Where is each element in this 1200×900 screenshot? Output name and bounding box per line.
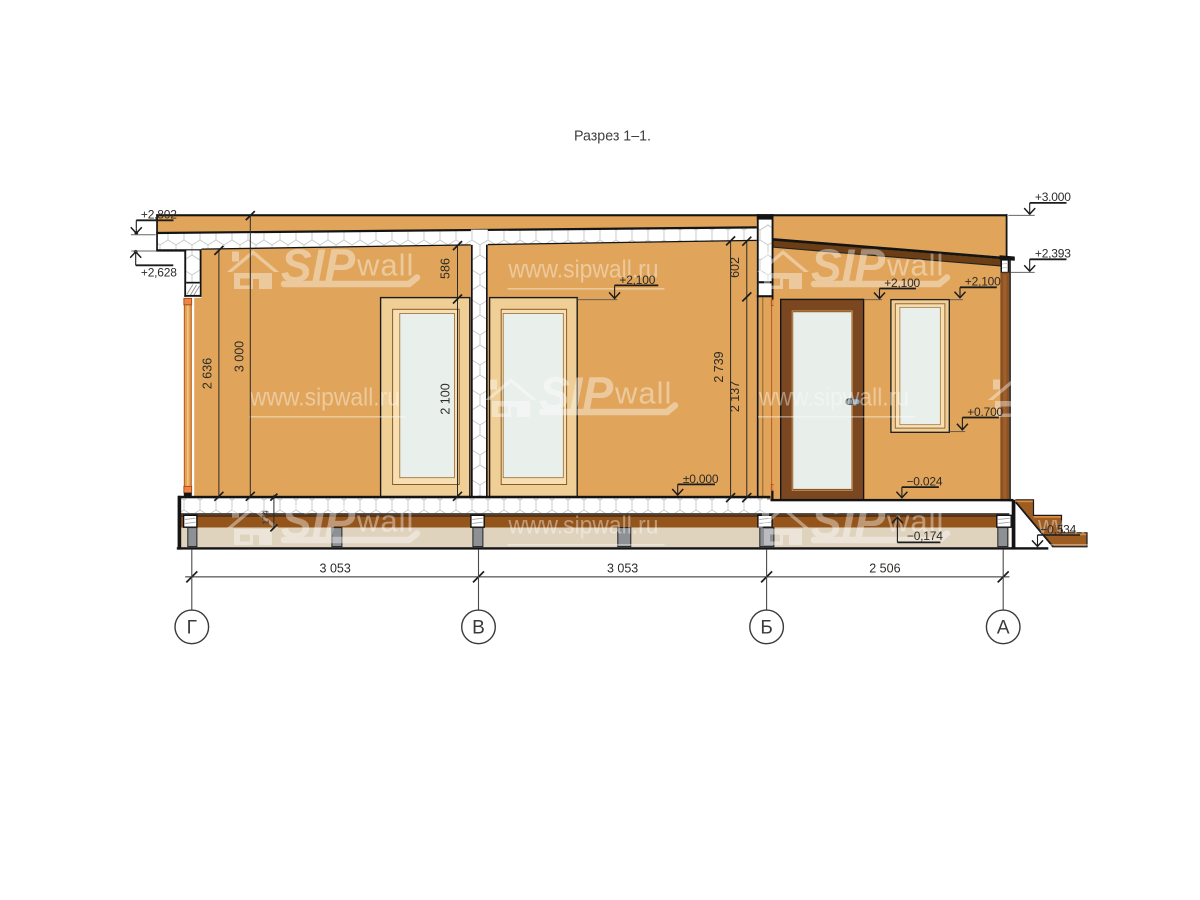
svg-text:3 000: 3 000: [233, 341, 247, 372]
svg-text:2 137: 2 137: [728, 381, 742, 412]
svg-text:174: 174: [260, 510, 270, 524]
svg-text:В: В: [472, 617, 485, 638]
svg-text:2 636: 2 636: [201, 358, 215, 389]
svg-text:2 739: 2 739: [712, 351, 726, 382]
svg-text:3 053: 3 053: [320, 562, 351, 576]
svg-text:2 100: 2 100: [439, 383, 453, 414]
svg-text:Б: Б: [760, 617, 772, 638]
svg-text:602: 602: [728, 257, 742, 278]
svg-text:А: А: [997, 617, 1010, 638]
svg-text:586: 586: [439, 258, 453, 279]
svg-text:3 053: 3 053: [607, 562, 638, 576]
svg-text:Разрез 1–1.: Разрез 1–1.: [574, 128, 651, 145]
svg-text:2 506: 2 506: [869, 562, 900, 576]
svg-text:+2,628: +2,628: [141, 266, 177, 280]
svg-text:−0,174: −0,174: [907, 529, 943, 543]
svg-text:Г: Г: [187, 617, 197, 638]
